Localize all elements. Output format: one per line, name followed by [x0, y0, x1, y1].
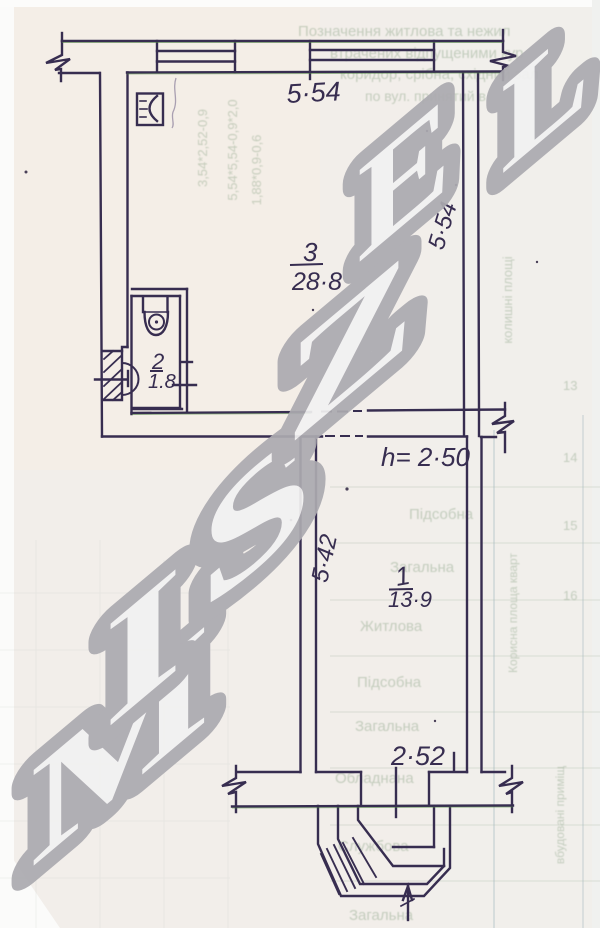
- svg-text:13·9: 13·9: [388, 587, 432, 612]
- svg-text:Корисна площа кварт: Корисна площа кварт: [506, 553, 520, 673]
- svg-text:15: 15: [563, 518, 577, 533]
- svg-text:14: 14: [563, 450, 577, 465]
- svg-text:Підсобна: Підсобна: [357, 674, 422, 691]
- svg-text:3,54*2,52-0,9: 3,54*2,52-0,9: [195, 109, 210, 187]
- svg-text:1,88*0,9-0,6: 1,88*0,9-0,6: [249, 135, 264, 206]
- svg-text:колишні площі: колишні площі: [500, 256, 515, 343]
- svg-text:Загальна: Загальна: [355, 718, 420, 735]
- svg-text:13: 13: [563, 378, 577, 393]
- svg-text:Загальна: Загальна: [349, 907, 414, 924]
- svg-text:5·54: 5·54: [286, 76, 342, 109]
- svg-text:2·52: 2·52: [390, 741, 445, 771]
- svg-text:5,54*5,54-0,9*2,0: 5,54*5,54-0,9*2,0: [225, 99, 240, 200]
- svg-text:вбудовані приміщ: вбудовані приміщ: [553, 766, 567, 864]
- svg-text:Підсобна: Підсобна: [409, 506, 474, 523]
- svg-text:Житлова: Житлова: [360, 618, 423, 635]
- svg-text:3: 3: [303, 237, 318, 267]
- svg-text:1.8: 1.8: [148, 371, 176, 393]
- svg-text:Позначення житлова та нежил: Позначення житлова та нежил: [298, 23, 511, 40]
- svg-text:16: 16: [563, 588, 577, 603]
- svg-text:h= 2·50: h= 2·50: [381, 442, 470, 472]
